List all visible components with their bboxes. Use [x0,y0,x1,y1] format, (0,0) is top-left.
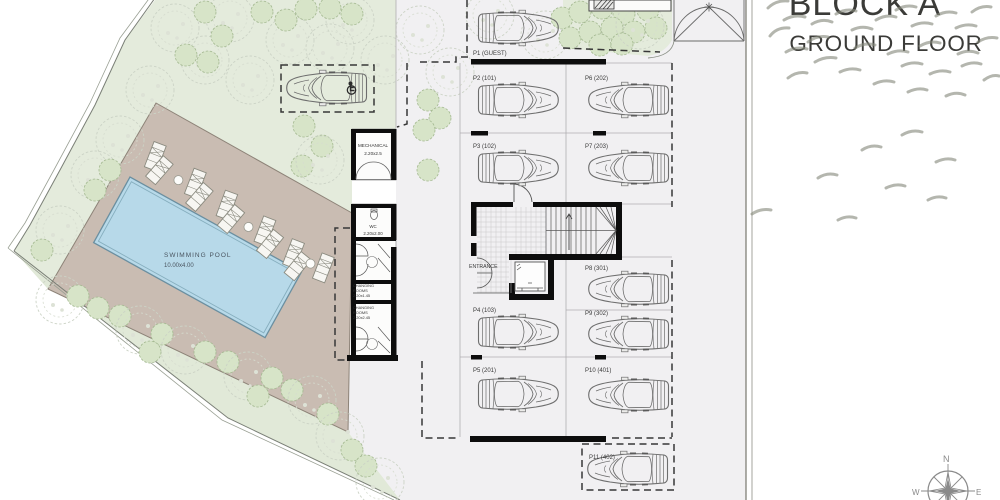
svg-text:2.20x2.45: 2.20x2.45 [353,315,370,320]
svg-text:N: N [943,454,950,464]
svg-text:2.20x1.45: 2.20x1.45 [353,293,370,298]
svg-text:P4 (103): P4 (103) [473,308,496,314]
svg-text:BLOCK A: BLOCK A [789,0,942,23]
svg-text:10.00x4.00: 10.00x4.00 [164,263,194,269]
svg-text:2.20x2.00: 2.20x2.00 [363,231,383,236]
svg-text:WC: WC [369,224,376,229]
svg-text:GROUND FLOOR: GROUND FLOOR [789,31,982,56]
svg-text:P11 (402): P11 (402) [589,455,615,461]
svg-text:P10 (401): P10 (401) [585,368,611,374]
svg-text:P3 (102): P3 (102) [473,144,496,150]
svg-text:SWIMMING POOL: SWIMMING POOL [164,252,232,259]
svg-text:P1 (GUEST): P1 (GUEST) [473,51,507,57]
svg-text:W: W [912,488,920,497]
svg-text:E: E [976,488,981,497]
svg-text:2.20x2.5: 2.20x2.5 [364,151,382,156]
svg-text:P9 (302): P9 (302) [585,311,608,317]
svg-text:P8 (301): P8 (301) [585,266,608,272]
svg-text:P5 (201): P5 (201) [473,368,496,374]
svg-text:ENTRANCE: ENTRANCE [469,264,498,270]
svg-text:MECHANICAL: MECHANICAL [358,143,389,148]
svg-text:P7 (203): P7 (203) [585,144,608,150]
svg-text:P6 (202): P6 (202) [585,76,608,82]
svg-text:P2 (101): P2 (101) [473,76,496,82]
